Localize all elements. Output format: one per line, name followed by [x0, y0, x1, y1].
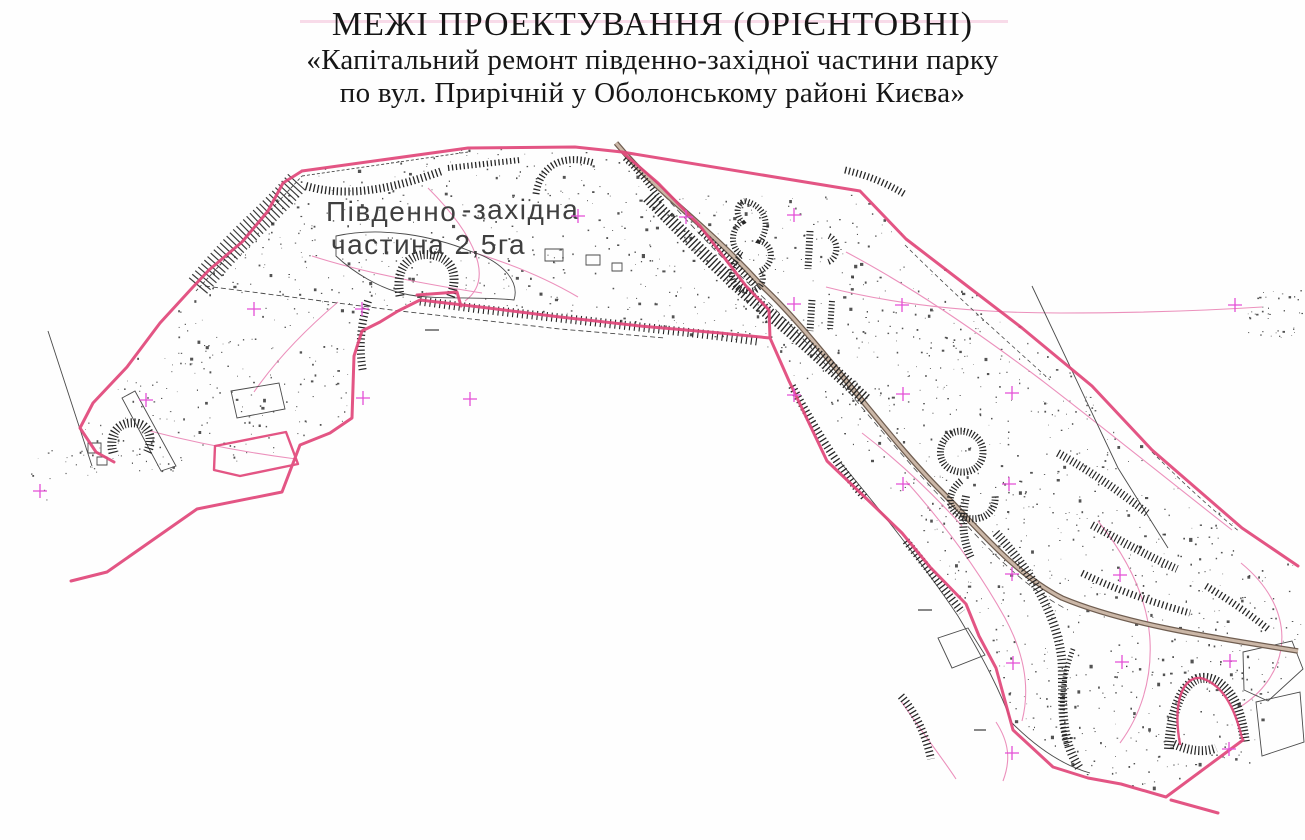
hatch-band	[830, 301, 832, 329]
illegible-micro-label	[974, 729, 986, 731]
hatch-band	[828, 236, 836, 262]
hatch-band	[950, 481, 995, 519]
grid-cross	[896, 387, 910, 401]
boundary-line	[80, 171, 302, 462]
illegible-micro-label	[425, 329, 439, 331]
building-outline	[586, 255, 600, 265]
grid-crosses	[33, 208, 1242, 760]
grid-cross	[1113, 568, 1127, 582]
grid-cross	[895, 298, 909, 312]
area-label-word1: Південно	[326, 196, 457, 227]
hatch-band	[906, 541, 962, 612]
fence-line	[48, 331, 92, 466]
contour-lines	[150, 188, 1282, 781]
grid-cross	[896, 477, 910, 491]
grid-cross	[139, 393, 153, 407]
hatch-band	[1082, 573, 1190, 613]
road	[616, 143, 1298, 651]
grid-cross	[1223, 654, 1237, 668]
grid-cross	[33, 484, 47, 498]
grid-cross	[463, 392, 477, 406]
contour-line	[254, 302, 338, 392]
grid-cross	[1006, 656, 1020, 670]
vegetation-speckles	[31, 149, 1303, 790]
grid-cross	[787, 208, 801, 222]
contour-line	[846, 252, 1232, 530]
scanned-plan-page: МЕЖІ ПРОЕКТУВАННЯ (ОРІЄНТОВНІ) «Капіталь…	[0, 0, 1305, 840]
plan-subtitle-line2: по вул. Прирічній у Оболонському районі …	[0, 77, 1305, 110]
fence-line	[1032, 286, 1168, 548]
hatch-band	[940, 431, 983, 472]
hatch-band	[963, 496, 971, 558]
hatch-band	[306, 171, 442, 192]
topographic-map: Південно -західна частина 2,5га	[0, 0, 1305, 840]
grid-cross	[356, 391, 370, 405]
grid-cross	[1002, 477, 1016, 491]
contour-line	[996, 722, 1008, 781]
area-label-line2: частина 2,5га	[331, 229, 526, 260]
road-casing	[616, 143, 1298, 651]
contour-line	[1240, 563, 1282, 707]
grid-cross	[1005, 386, 1019, 400]
hatch-band	[792, 386, 866, 499]
hatch-band	[901, 696, 931, 759]
boundary-line	[214, 432, 298, 476]
grid-cross	[787, 297, 801, 311]
boundary-line	[1171, 800, 1218, 813]
contour-line	[826, 287, 1262, 313]
parcel-outline	[1256, 692, 1304, 756]
area-label-word2: -західна	[462, 194, 579, 225]
title-block: МЕЖІ ПРОЕКТУВАННЯ (ОРІЄНТОВНІ) «Капіталь…	[0, 6, 1305, 110]
footpath-line	[1152, 452, 1240, 532]
hatch-band	[1092, 525, 1177, 569]
slope-hatching	[112, 158, 1268, 769]
grid-cross	[1228, 298, 1242, 312]
hatch-band	[808, 231, 810, 269]
hatch-band	[810, 300, 812, 331]
hatch-band	[1058, 453, 1147, 513]
contour-line	[862, 433, 962, 526]
building-outline	[612, 263, 622, 271]
road-surface	[616, 143, 1298, 651]
micro-labels	[425, 329, 986, 731]
plan-title: МЕЖІ ПРОЕКТУВАННЯ (ОРІЄНТОВНІ)	[0, 6, 1305, 44]
grid-cross	[355, 302, 369, 316]
hatch-band	[996, 533, 1080, 769]
parcel-outline	[231, 383, 285, 418]
hatch-band	[1206, 586, 1268, 629]
illegible-micro-label	[918, 609, 932, 611]
design-boundary	[71, 147, 1298, 813]
plan-subtitle-line1: «Капітальний ремонт південно-західної ча…	[0, 44, 1305, 77]
hatch-band	[448, 160, 520, 168]
grid-cross	[247, 302, 261, 316]
